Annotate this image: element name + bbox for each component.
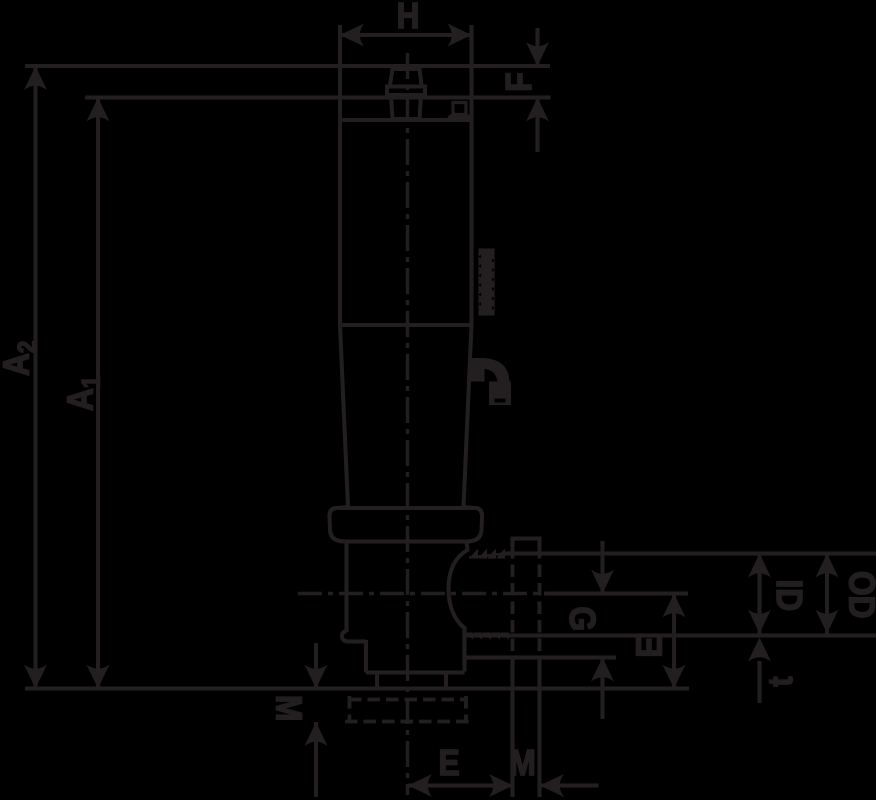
svg-text:ID: ID	[769, 580, 809, 612]
svg-text:M: M	[268, 695, 308, 721]
svg-text:F: F	[499, 72, 539, 91]
svg-text:G: G	[562, 607, 602, 632]
svg-text:E: E	[630, 636, 670, 657]
svg-text:t: t	[761, 676, 799, 686]
svg-text:H: H	[397, 0, 420, 36]
svg-text:M: M	[509, 743, 535, 783]
svg-text:OD: OD	[841, 571, 876, 619]
svg-text:E: E	[438, 743, 459, 783]
